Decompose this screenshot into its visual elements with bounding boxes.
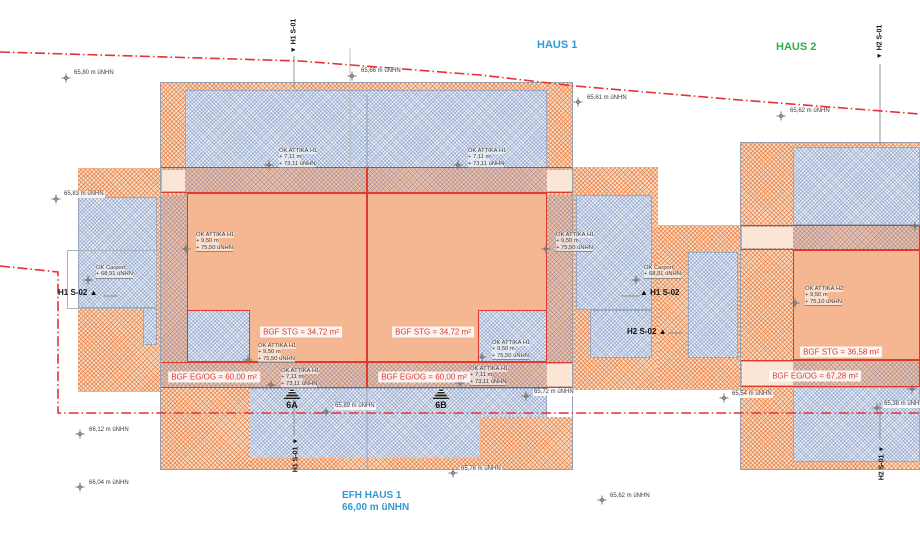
- section-marker-vertical: ▼ H2 S-01: [877, 25, 884, 60]
- survey-cross-icon: [76, 430, 85, 439]
- survey-cross-icon: [777, 112, 786, 121]
- bgf-area-label: BGF STG = 34,72 m²: [260, 327, 342, 338]
- survey-cross-icon: [449, 469, 458, 478]
- attika-label-line: + 9,50 m: [196, 238, 219, 244]
- elevation-label: 65,62 m üNHN: [609, 493, 651, 500]
- elevation-label: 66,04 m üNHN: [88, 480, 130, 487]
- survey-cross-icon: [908, 385, 917, 394]
- attika-label-line: + 7,11 m: [279, 154, 301, 160]
- survey-cross-icon: [791, 299, 800, 308]
- section-marker-vertical: H2 S-01 ▼: [879, 446, 886, 481]
- attika-label-line: + 73,11 üNHN: [468, 161, 504, 168]
- survey-cross-icon: [265, 161, 274, 170]
- elevation-label: 65,62 m üNHN: [789, 108, 831, 115]
- carport-label: OK Carport+ 68,91 üNHN: [96, 265, 133, 279]
- elevation-label: 65,61 m üNHN: [586, 95, 628, 102]
- survey-cross-icon: [873, 404, 882, 413]
- attika-label-line: + 73,11 üNHN: [281, 381, 317, 388]
- survey-cross-icon: [76, 483, 85, 492]
- survey-cross-icon: [911, 222, 920, 231]
- elevation-label: 65,83 m üNHN: [63, 191, 105, 198]
- survey-cross-icon: [632, 276, 641, 285]
- bgf-area-label: BGF EG/OG = 60,00 m²: [378, 372, 470, 383]
- site-plan-canvas: 65,80 m üNHN65,66 m üNHN65,61 m üNHN65,6…: [0, 0, 920, 533]
- survey-cross-icon: [267, 381, 276, 390]
- carport-label-line: + 68,91 üNHN: [644, 271, 681, 278]
- entrance-arrow-icon: [284, 388, 301, 399]
- section-marker-vertical: H1 S-01 ▼: [293, 438, 300, 473]
- attika-label: OK ATTIKA H1+ 7,11 m+ 73,11 üNHN: [470, 366, 508, 386]
- attika-label-line: + 7,11 m: [468, 154, 490, 160]
- survey-cross-icon: [84, 276, 93, 285]
- elevation-label: 65,38 m üNHN: [883, 401, 920, 408]
- carport-label: OK Carport+ 68,91 üNHN: [644, 265, 681, 279]
- attika-label: OK ATTIKA H1+ 7,11 m+ 73,11 üNHN: [279, 148, 317, 168]
- attika-label-line: + 75,10 üNHN: [805, 299, 842, 306]
- section-marker-horizontal: H1 S-02 ▲: [58, 288, 98, 297]
- attika-label-line: + 7,11 m: [470, 372, 492, 378]
- bgf-area-label: BGF EG/OG = 67,28 m²: [769, 371, 861, 382]
- section-marker-horizontal: ▲ H1 S-02: [640, 288, 680, 297]
- attika-label-line: + 9,50 m: [556, 238, 579, 244]
- survey-cross-icon: [574, 98, 583, 107]
- survey-cross-icon: [62, 74, 71, 83]
- elevation-label: 65,80 m üNHN: [73, 70, 115, 77]
- attika-label-line: + 73,11 üNHN: [279, 161, 315, 168]
- elevation-label: 65,72 m üNHN: [533, 389, 575, 396]
- survey-cross-icon: [322, 408, 331, 417]
- unit-number-label: 6A: [286, 400, 298, 410]
- attika-label-line: + 75,50 üNHN: [196, 245, 233, 252]
- attika-label-line: + 75,50 üNHN: [492, 353, 529, 360]
- survey-cross-icon: [182, 245, 191, 254]
- title-haus1: HAUS 1: [537, 39, 577, 51]
- attika-label-line: + 75,50 üNHN: [556, 245, 593, 252]
- attika-label: OK ATTIKA H1+ 9,50 m+ 75,50 üNHN: [196, 232, 234, 252]
- attika-label-line: + 75,50 üNHN: [258, 356, 295, 363]
- attika-label: OK ATTIKA H1+ 7,11 m+ 73,11 üNHN: [281, 368, 319, 388]
- bgf-area-label: BGF EG/OG = 60,00 m²: [168, 372, 260, 383]
- section-marker-horizontal: H2 S-02 ▲: [627, 327, 667, 336]
- survey-cross-icon: [52, 195, 61, 204]
- unit-number-label: 6B: [435, 400, 447, 410]
- attika-label-line: + 9,50 m: [805, 292, 828, 298]
- title-efh-haus1: EFH HAUS 1 66,00 m üNHN: [342, 490, 409, 514]
- attika-label: OK ATTIKA H1+ 9,50 m+ 75,50 üNHN: [492, 340, 530, 360]
- attika-label-line: + 9,50 m: [258, 349, 281, 355]
- bgf-area-label: BGF STG = 36,58 m²: [800, 347, 882, 358]
- efh-haus1-name: EFH HAUS 1: [342, 490, 409, 502]
- attika-label-line: + 73,11 üNHN: [470, 379, 506, 386]
- survey-cross-icon: [348, 72, 357, 81]
- title-haus2: HAUS 2: [776, 41, 816, 53]
- elevation-label: 65,76 m üNHN: [460, 466, 502, 473]
- elevation-label: 65,89 m üNHN: [334, 403, 376, 410]
- survey-cross-icon: [478, 353, 487, 362]
- survey-cross-icon: [454, 161, 463, 170]
- attika-label-line: + 9,50 m: [492, 346, 515, 352]
- efh-haus1-level: 66,00 m üNHN: [342, 502, 409, 514]
- survey-cross-icon: [244, 356, 253, 365]
- attika-label-line: + 7,11 m: [281, 374, 303, 380]
- survey-cross-icon: [720, 394, 729, 403]
- attika-label: OK ATTIKA H1+ 7,11 m+ 73,11 üNHN: [468, 148, 506, 168]
- survey-cross-icon: [522, 392, 531, 401]
- elevation-label: 66,12 m üNHN: [88, 427, 130, 434]
- section-marker-vertical: ▼ H1 S-01: [291, 19, 298, 54]
- carport-label-line: + 68,91 üNHN: [96, 271, 133, 278]
- survey-cross-icon: [542, 245, 551, 254]
- attika-label: OK ATTIKA H1+ 9,50 m+ 75,50 üNHN: [556, 232, 594, 252]
- attika-label: OK ATTIKA H1+ 9,50 m+ 75,50 üNHN: [258, 343, 296, 363]
- attika-label: OK ATTIKA H2+ 9,50 m+ 75,10 üNHN: [805, 286, 843, 306]
- annotation-layer: 65,80 m üNHN65,66 m üNHN65,61 m üNHN65,6…: [0, 0, 920, 533]
- elevation-label: 65,54 m üNHN: [731, 391, 773, 398]
- survey-cross-icon: [598, 496, 607, 505]
- elevation-label: 65,66 m üNHN: [360, 68, 402, 75]
- bgf-area-label: BGF STG = 34,72 m²: [392, 327, 474, 338]
- entrance-arrow-icon: [433, 388, 450, 399]
